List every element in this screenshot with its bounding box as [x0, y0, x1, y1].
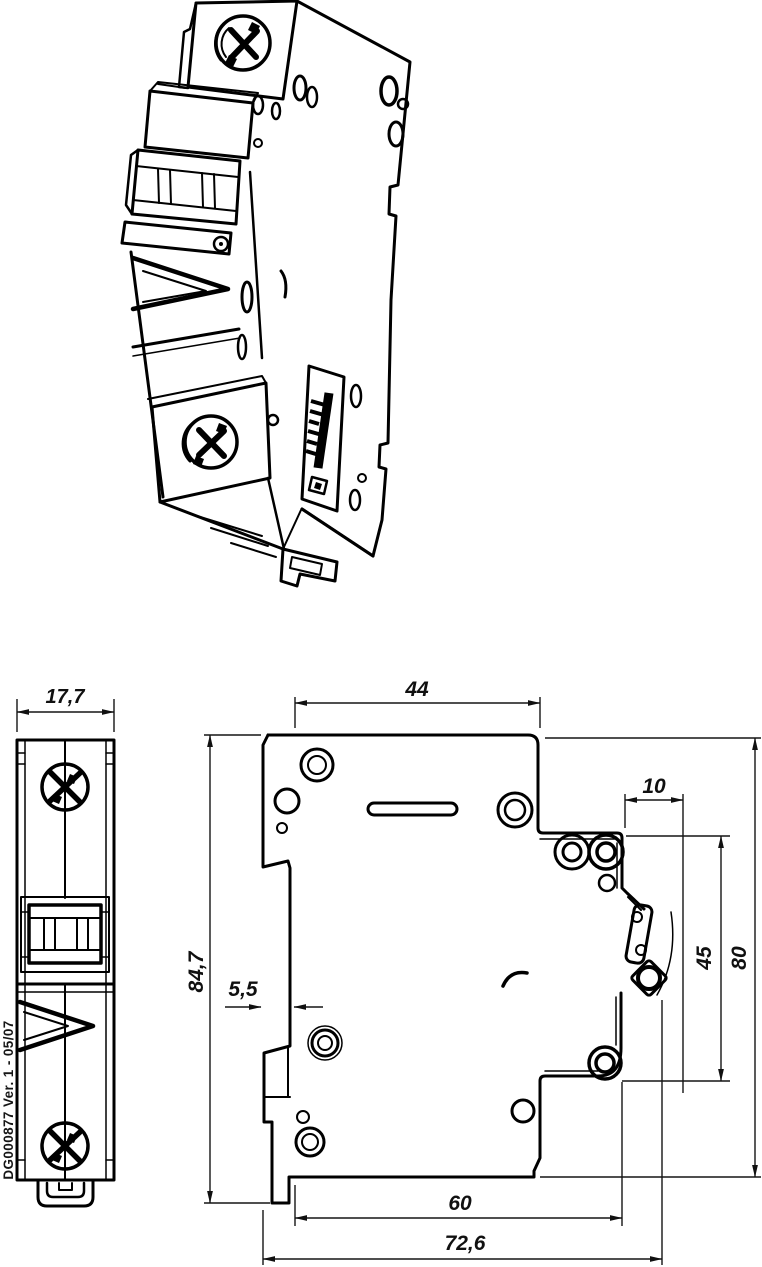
iso-front-seam: [250, 172, 284, 549]
dim-84-7-text: 84,7: [185, 950, 208, 992]
iso-toggle-handle: [132, 150, 240, 224]
iso-parting-line: [133, 338, 240, 356]
iso-seam-slot: [242, 282, 252, 312]
side-rivet: [312, 1030, 338, 1056]
side-curved-slot: [503, 973, 527, 986]
isometric-view: [122, 1, 410, 586]
side-rivet-inner: [596, 1054, 614, 1072]
iso-parting-line: [133, 329, 239, 347]
dim-60-text: 60: [448, 1192, 472, 1215]
iso-seam-slot: [238, 335, 246, 359]
side-hole-small: [277, 823, 287, 833]
side-rivet: [296, 1128, 324, 1156]
iso-handle-rib: [170, 170, 171, 204]
side-hole: [275, 789, 299, 813]
side-rivet-inner: [302, 1134, 318, 1150]
dim-72-6-text: 72,6: [445, 1232, 486, 1255]
iso-handle-rib: [158, 169, 159, 203]
iso-handle-band: [136, 166, 238, 177]
iso-bottom-edges: [160, 502, 373, 556]
dim-17-7-text: 17,7: [46, 686, 86, 708]
dim-10-ext: [625, 794, 683, 1093]
iso-pivot-dot: [254, 139, 262, 147]
iso-handle-band: [133, 200, 236, 211]
dim-44-ext: [295, 697, 540, 728]
dim-44-text: 44: [404, 678, 429, 701]
side-rivet-inner: [563, 843, 581, 861]
side-outline-lower: [263, 735, 621, 1203]
iso-seam-oval: [272, 103, 280, 119]
iso-label-square-fill: [314, 482, 322, 490]
iso-side-panel: [297, 1, 410, 556]
iso-panel-hole: [381, 77, 397, 105]
iso-barcode-bar: [307, 441, 317, 444]
dim-84-7-ext: [204, 735, 270, 1203]
front-view: [17, 740, 114, 1206]
iso-barcode-bar: [311, 401, 325, 405]
iso-front-left-edge: [131, 252, 163, 497]
iso-handle-pivot-dot: [219, 242, 223, 246]
doc-reference-text: DG000877 Ver. 1 - 05/07: [1, 1020, 16, 1179]
iso-barcode-bar: [309, 421, 319, 424]
iso-panel-hole: [294, 76, 306, 100]
side-rivet-inner: [597, 843, 615, 861]
side-rivet-inner: [505, 800, 525, 820]
technical-drawing-svg: 17,7 44 10 84,7 5,5 45 80 60 72,6: [0, 0, 762, 1267]
front-toggle-handle: [29, 905, 101, 963]
side-rivet: [301, 749, 333, 781]
iso-handle-rib: [214, 174, 215, 208]
side-rivet: [498, 793, 532, 827]
side-toggle-cap-hole: [638, 967, 660, 989]
side-rivet: [555, 835, 589, 869]
iso-panel-hole: [307, 87, 317, 107]
iso-small-hole: [268, 415, 278, 425]
iso-toggle-bezel: [145, 91, 253, 158]
dim-80-text: 80: [728, 946, 751, 970]
side-rivet-inner: [308, 756, 326, 774]
iso-din-clip-slot: [290, 557, 322, 575]
side-hole-small: [297, 1111, 309, 1123]
iso-panel-hole: [389, 122, 403, 146]
side-rivet-inner: [318, 1036, 332, 1050]
iso-panel-hole: [350, 490, 360, 510]
dim-5-5-text: 5,5: [228, 978, 258, 1001]
iso-panel-hole: [358, 474, 366, 482]
side-hole: [512, 1100, 534, 1122]
drawing-sheet: 17,7 44 10 84,7 5,5 45 80 60 72,6: [0, 0, 762, 1267]
front-toggle-recess: [21, 897, 109, 972]
front-arrow-mark: [20, 1002, 93, 1050]
side-rivet: [589, 835, 623, 869]
side-view: [263, 735, 673, 1203]
front-din-tab-notch: [59, 1183, 72, 1190]
side-slot: [368, 803, 457, 815]
dim-72-6-ext: [263, 1000, 662, 1265]
side-hole-small: [599, 875, 615, 891]
iso-bottom-slat: [211, 528, 268, 546]
front-toggle-ribs: [44, 918, 88, 950]
iso-bottom-corner: [283, 510, 301, 549]
iso-panel-hole: [351, 385, 361, 407]
iso-handle-rib: [202, 173, 203, 207]
iso-top-screw-arc2: [222, 28, 229, 57]
dim-10-text: 10: [642, 775, 666, 798]
iso-curved-slot: [281, 271, 286, 297]
dim-45-text: 45: [693, 946, 716, 971]
